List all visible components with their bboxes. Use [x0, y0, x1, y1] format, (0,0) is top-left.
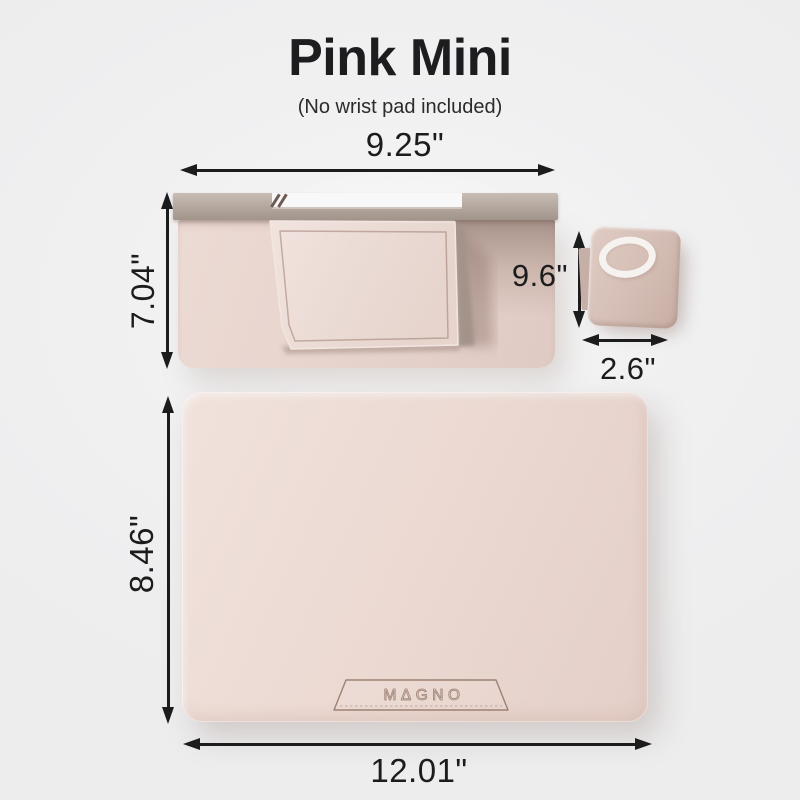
product-dimension-diagram: Pink Mini (No wrist pad included) 9.25" — [0, 0, 800, 800]
stand-width-label: 9.25" — [220, 126, 590, 164]
arrow-line — [167, 401, 170, 719]
arrow-line — [185, 169, 550, 172]
stand-top-bar — [173, 193, 558, 220]
mat-width-arrow — [183, 743, 652, 746]
page-title: Pink Mini — [0, 28, 800, 88]
magsafe-stand-image — [578, 224, 698, 339]
stand-height-label: 7.04" — [125, 226, 161, 356]
arrow-line — [587, 339, 663, 342]
desk-mat-image: MΔGNO — [182, 392, 648, 722]
arrow-line — [166, 197, 169, 364]
brand-plate: MΔGNO — [330, 678, 512, 716]
stand-width-arrow — [180, 169, 555, 172]
kickstand-face — [270, 221, 458, 349]
stand-kickstand — [258, 219, 498, 359]
magsafe-width-label: 2.6" — [582, 351, 674, 387]
stand-depth-label: 9.6" — [468, 258, 568, 294]
magsafe-ring-icon — [597, 234, 658, 281]
arrow-line — [188, 743, 647, 746]
magsafe-body — [587, 226, 681, 329]
stand-bar-notch — [272, 193, 462, 207]
stand-height-arrow — [166, 192, 169, 369]
magsafe-width-arrow — [582, 339, 668, 342]
brand-logo-text: MΔGNO — [383, 687, 464, 704]
stand-bar-lip — [272, 207, 462, 209]
mat-height-label: 8.46" — [123, 479, 163, 629]
page-subtitle: (No wrist pad included) — [0, 96, 800, 119]
mat-height-arrow — [167, 396, 170, 724]
mat-width-label: 12.01" — [186, 752, 652, 790]
